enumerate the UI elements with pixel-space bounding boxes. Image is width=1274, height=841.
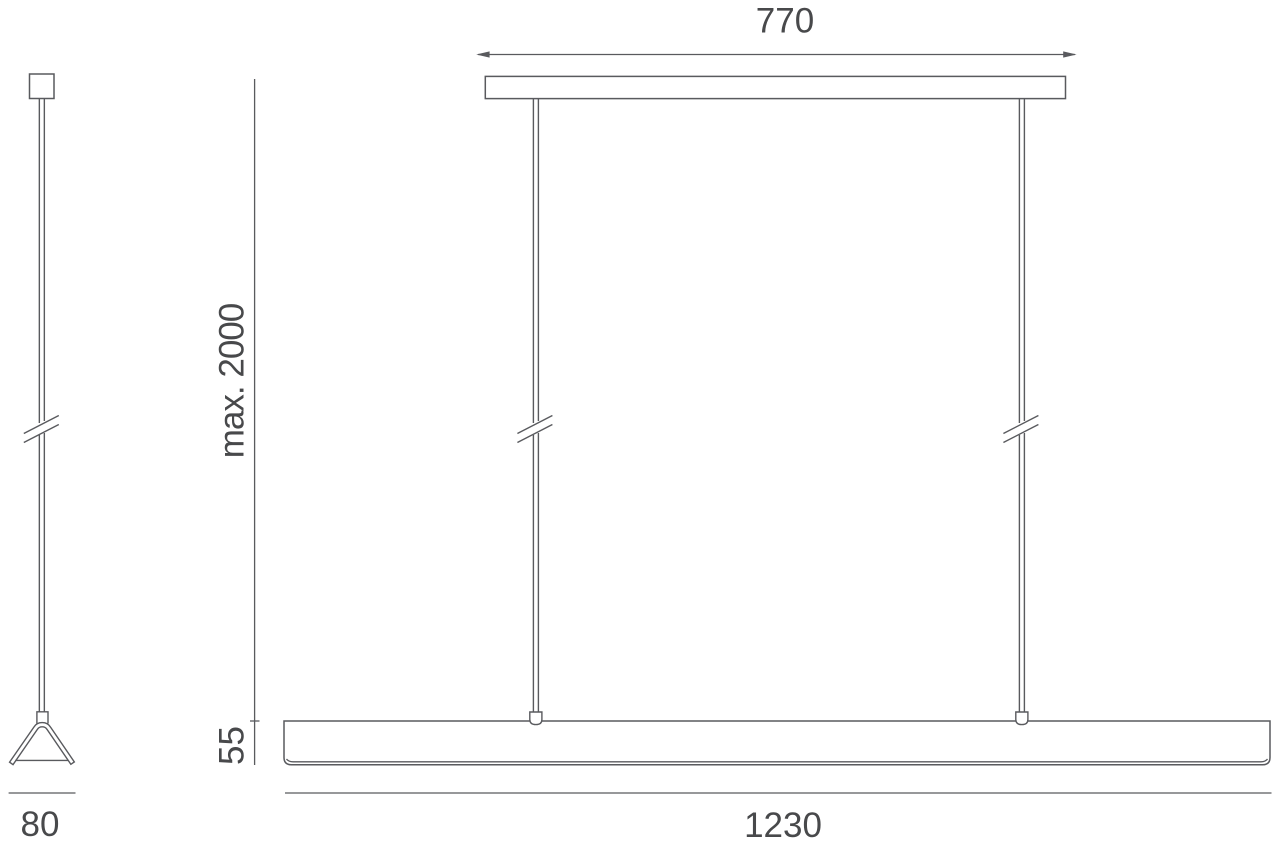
svg-text:770: 770 (756, 2, 814, 41)
svg-text:55: 55 (213, 726, 252, 765)
svg-text:80: 80 (21, 805, 60, 841)
svg-text:1230: 1230 (744, 806, 822, 841)
svg-text:max. 2000: max. 2000 (213, 303, 252, 458)
